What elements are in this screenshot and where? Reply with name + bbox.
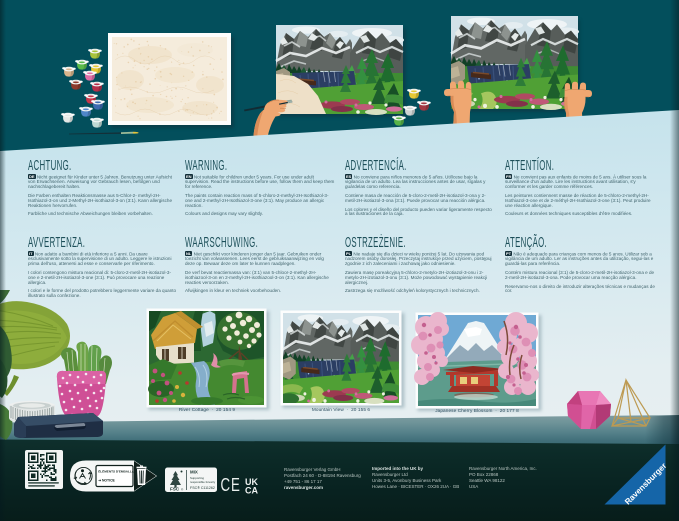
svg-text:CA: CA bbox=[245, 486, 258, 496]
svg-text:responsible forestry: responsible forestry bbox=[190, 480, 216, 484]
svg-text:CE: CE bbox=[221, 475, 241, 496]
svg-text:➜ NOTICE: ➜ NOTICE bbox=[98, 479, 115, 483]
svg-text:ÉLÉMENTS D'EMBALLAGE: ÉLÉMENTS D'EMBALLAGE bbox=[98, 469, 138, 474]
svg-text:FSC: FSC bbox=[170, 487, 180, 492]
svg-text:MIX: MIX bbox=[190, 470, 198, 475]
svg-text:FSC® C111262: FSC® C111262 bbox=[190, 486, 215, 490]
